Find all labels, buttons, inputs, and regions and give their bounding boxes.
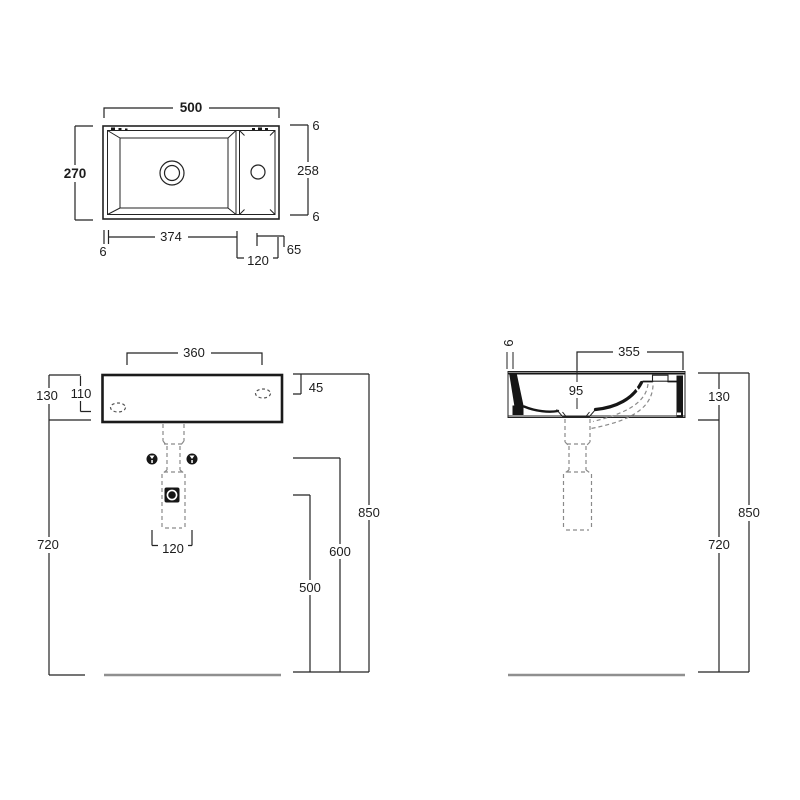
drain-hole-outer xyxy=(160,161,184,185)
dim-label-bowl-length: 374 xyxy=(160,229,182,244)
fixing-bolt-right xyxy=(187,454,198,465)
fixing-bolt-left xyxy=(147,454,158,465)
bowl-deck-divider xyxy=(236,131,240,215)
right-wall-notch xyxy=(677,413,681,416)
basin-outline-plan xyxy=(103,126,279,219)
rim-inner-plan xyxy=(108,131,276,215)
bowl-bevel-lines xyxy=(108,131,237,215)
dim-label-projection: 355 xyxy=(618,344,640,359)
dim-label-underside-height-front: 720 xyxy=(37,537,59,552)
dim-label-bolt-height: 600 xyxy=(329,544,351,559)
dim-lines-right-side xyxy=(698,373,749,672)
bowl-bottom-curve xyxy=(524,407,558,412)
trap-outlet xyxy=(165,488,180,503)
dim-label-waste-span: 120 xyxy=(162,541,184,556)
dim-label-bowl-depth: 95 xyxy=(569,383,583,398)
dim-label-fixing-span: 360 xyxy=(183,345,205,360)
right-wall-section xyxy=(677,376,684,418)
tap-hole xyxy=(251,165,265,179)
basin-outline-front xyxy=(103,375,283,422)
dim-label-overall-depth: 270 xyxy=(64,166,87,181)
dim-label-body-height-side: 130 xyxy=(708,389,730,404)
dim-ticks-rim-thickness xyxy=(507,352,513,369)
dim-label-deck-width: 120 xyxy=(247,253,269,268)
dim-lines-right-front xyxy=(293,374,369,672)
bowl-rear-curve xyxy=(596,383,642,410)
dim-lines-left-front xyxy=(49,375,91,675)
dim-label-rim-left: 6 xyxy=(99,244,106,259)
plan-view: 500 270 6 258 6 6 374 120 65 xyxy=(58,100,324,268)
left-wall-section xyxy=(509,373,524,411)
dim-label-underside-height-side: 720 xyxy=(708,537,730,552)
waste-pipe-side xyxy=(564,419,592,530)
left-wall-foot xyxy=(513,406,524,416)
waste-pipe-front xyxy=(162,424,185,528)
bowl-bottom-plan xyxy=(120,138,228,208)
dim-label-rim-top: 6 xyxy=(312,118,319,133)
dim-label-rim-thickness: 6 xyxy=(501,339,516,346)
deck-bevel-lines xyxy=(240,131,276,215)
dim-label-body-height-front: 130 xyxy=(36,388,58,403)
fixing-hole-left xyxy=(111,403,126,412)
front-view: 360 130 110 45 720 120 500 600 850 xyxy=(30,345,386,675)
side-view: 6 355 95 130 720 850 xyxy=(501,339,766,675)
drawing-canvas: 500 270 6 258 6 6 374 120 65 xyxy=(0,0,800,800)
tap-hole-section xyxy=(653,375,669,381)
dim-label-trap-height: 500 xyxy=(299,580,321,595)
dim-label-rim-height-side: 850 xyxy=(738,505,760,520)
dim-label-overall-width: 500 xyxy=(180,100,203,115)
dim-label-rim-bottom: 6 xyxy=(312,209,319,224)
fixing-hole-right xyxy=(256,389,271,398)
overflow-channel-dashed xyxy=(591,384,653,429)
dim-label-rim-height-front: 850 xyxy=(358,505,380,520)
dim-label-inner-depth: 258 xyxy=(297,163,319,178)
drain-hole-inner xyxy=(165,166,180,181)
dim-label-tap-offset: 65 xyxy=(287,242,301,257)
dim-label-fixing-drop: 110 xyxy=(71,386,92,401)
washbasin-drawing: 500 270 6 258 6 6 374 120 65 xyxy=(0,0,800,800)
drain-recess-outer xyxy=(557,410,596,417)
dim-label-apron-height: 45 xyxy=(309,380,323,395)
